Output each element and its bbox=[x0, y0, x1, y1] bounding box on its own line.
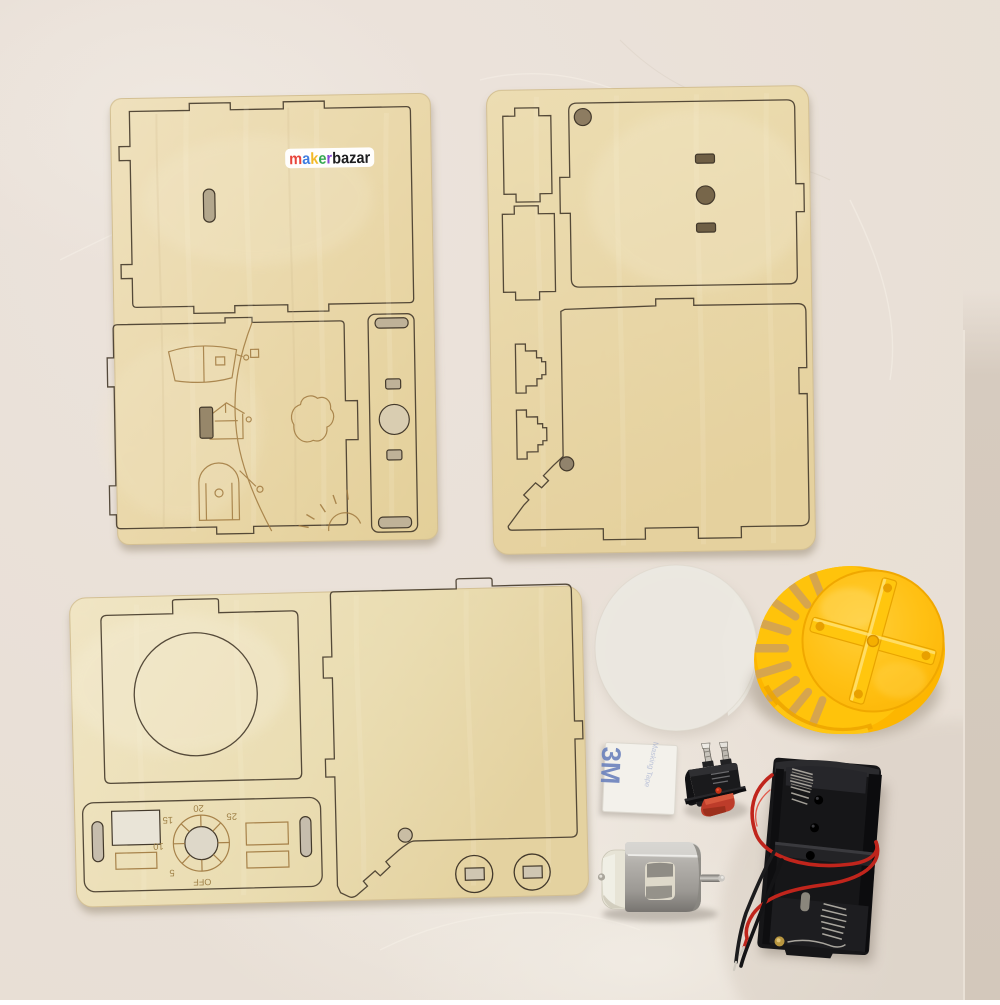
svg-text:3M: 3M bbox=[595, 746, 627, 785]
svg-text:OFF: OFF bbox=[193, 877, 212, 887]
svg-text:20: 20 bbox=[193, 802, 204, 813]
svg-text:15: 15 bbox=[162, 814, 173, 825]
svg-text:25: 25 bbox=[226, 810, 237, 821]
svg-text:5: 5 bbox=[169, 867, 175, 878]
svg-text:makerbazar: makerbazar bbox=[289, 150, 370, 168]
svg-text:10: 10 bbox=[153, 840, 164, 851]
